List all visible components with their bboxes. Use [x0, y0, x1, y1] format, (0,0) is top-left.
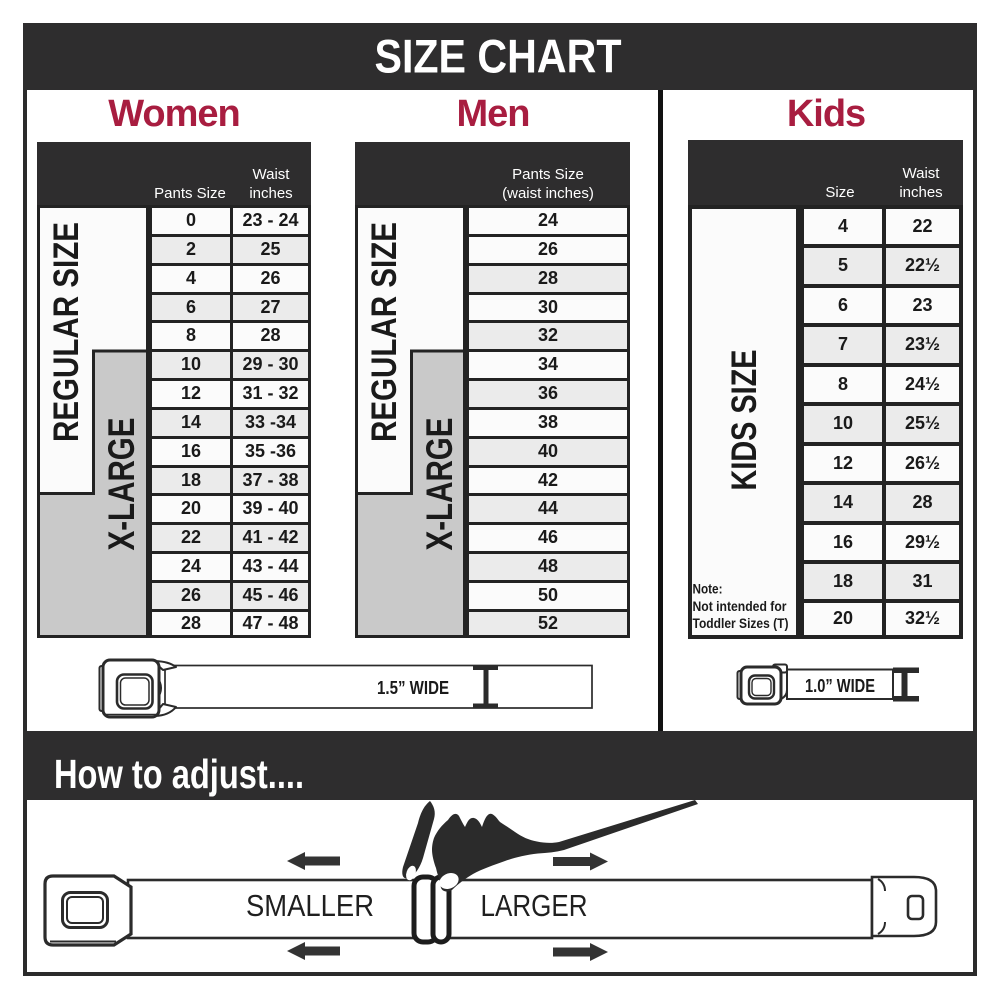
svg-text:1.0” WIDE: 1.0” WIDE	[805, 676, 875, 696]
svg-text:LARGER: LARGER	[481, 888, 588, 923]
svg-text:REGULAR SIZE: REGULAR SIZE	[365, 222, 404, 442]
svg-text:How to adjust....: How to adjust....	[54, 751, 304, 797]
svg-text:1.5” WIDE: 1.5” WIDE	[377, 678, 449, 698]
svg-text:SMALLER: SMALLER	[246, 888, 374, 923]
svg-text:Not intended for: Not intended for	[693, 598, 787, 614]
svg-text:REGULAR SIZE: REGULAR SIZE	[47, 222, 86, 442]
svg-text:X-LARGE: X-LARGE	[419, 418, 460, 551]
svg-text:Toddler Sizes (T): Toddler Sizes (T)	[693, 615, 789, 631]
svg-text:SIZE CHART: SIZE CHART	[375, 31, 622, 84]
svg-text:Note:: Note:	[693, 581, 723, 597]
svg-text:X-LARGE: X-LARGE	[101, 418, 142, 551]
svg-text:KIDS SIZE: KIDS SIZE	[725, 350, 764, 491]
